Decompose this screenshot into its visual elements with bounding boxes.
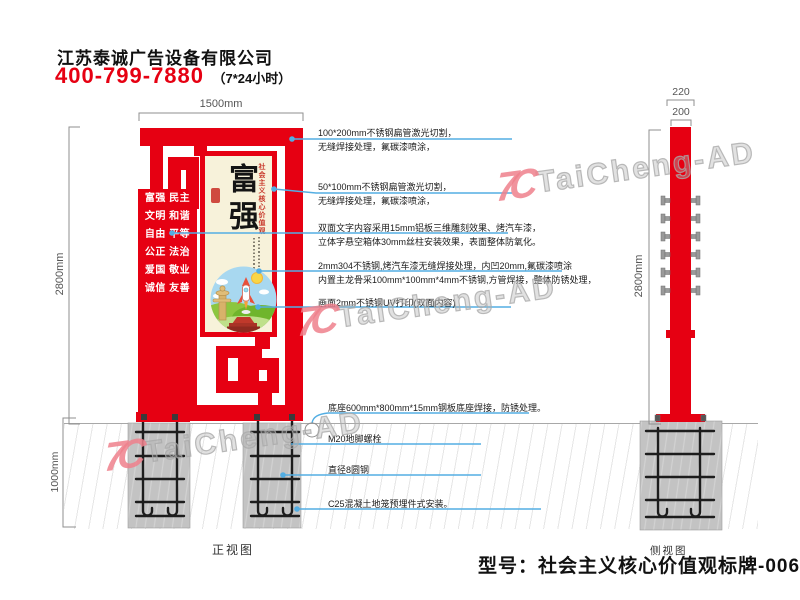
annotation-uv-print: 画面2mm不锈钢UV打印(双面内容) [318,296,456,310]
annotation-line: 无缝焊接处理，氟碳漆喷涂， [318,194,452,208]
annotation-line: 画面2mm不锈钢UV打印(双面内容) [318,296,456,310]
annotation-round-steel: 直径8圆钢 [328,463,369,477]
annotation-line: 无缝焊接处理，氟碳漆喷涂， [318,140,457,154]
annotation-line: M20地脚螺栓 [328,432,382,446]
annotation-line: 立体字悬空箱体30mm丝柱安装效果，表面整体防氧化。 [318,235,541,249]
annotation-line: 双面文字内容采用15mm铝板三维雕刻效果、烤汽车漆， [318,221,541,235]
annotation-line: 底座600mm*800mm*15mm钢板底座焊接，防锈处理。 [328,401,546,415]
leader-dots [169,136,300,512]
bolt-highlight-circle [305,423,319,437]
annotation-line: C25混凝土地笼预埋件式安装。 [328,497,453,511]
front-view-label: 正视图 [212,541,254,558]
model-number-label: 型号：社会主义核心价值观标牌-0062 [478,551,800,578]
annotation-line: 100*200mm不锈钢扁管激光切割， [318,126,457,140]
annotation-carved-letters: 双面文字内容采用15mm铝板三维雕刻效果、烤汽车漆， 立体字悬空箱体30mm丝柱… [318,221,541,249]
annotation-steel-tube-100x200: 100*200mm不锈钢扁管激光切割， 无缝焊接处理，氟碳漆喷涂， [318,126,457,154]
design-proof-sheet: 江苏泰诚广告设备有限公司 400-799-7880 （7*24小时） [0,0,800,600]
annotation-base-plate: 底座600mm*800mm*15mm钢板底座焊接，防锈处理。 [328,401,546,415]
annotation-304-steel-body: 2mm304不锈钢,烤汽车漆无缝焊接处理，内凹20mm,氟碳漆喷涂 内置主龙骨采… [318,259,597,287]
annotation-line: 内置主龙骨采100mm*100mm*4mm不锈钢,方管焊接，整体防锈处理， [318,273,597,287]
annotation-line: 50*100mm不锈钢扁管激光切割， [318,180,452,194]
annotation-line: 2mm304不锈钢,烤汽车漆无缝焊接处理，内凹20mm,氟碳漆喷涂 [318,259,597,273]
annotation-line: 直径8圆钢 [328,463,369,477]
annotation-anchor-bolt: M20地脚螺栓 [328,432,382,446]
annotation-concrete-cage: C25混凝土地笼预埋件式安装。 [328,497,453,511]
annotation-steel-tube-50x100: 50*100mm不锈钢扁管激光切割， 无缝焊接处理，氟碳漆喷涂， [318,180,452,208]
